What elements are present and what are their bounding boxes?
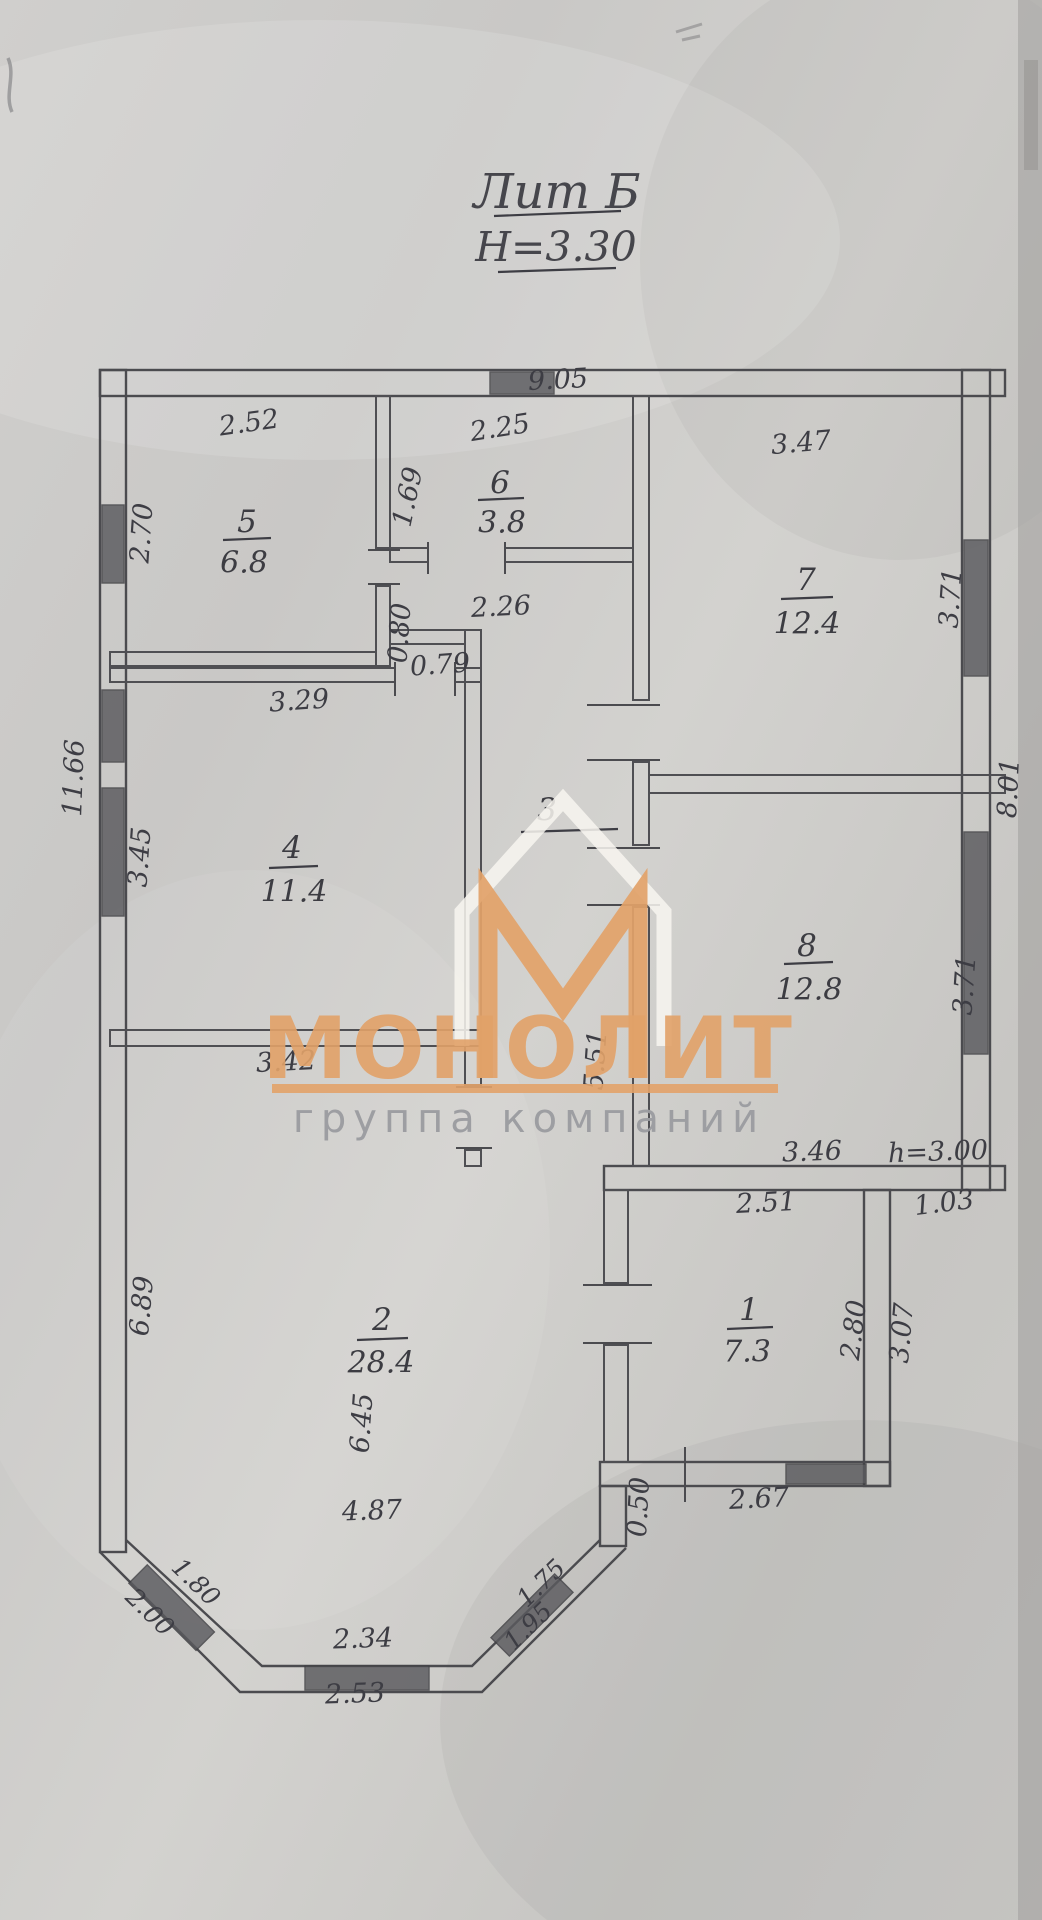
- dim-room1-height: 2.80: [835, 1298, 873, 1362]
- dim-room8-height: 3.71: [947, 954, 982, 1016]
- scan-artifact: [676, 24, 702, 40]
- dim-room5-width: 2.52: [216, 403, 281, 442]
- dim-room1-width: 2.51: [734, 1186, 797, 1220]
- dim-ceiling-note: h=3.00: [887, 1135, 988, 1169]
- dim-room2-bottom: 4.87: [340, 1494, 403, 1527]
- room-2-number: 2: [371, 1302, 392, 1338]
- window-room4-left-upper: [102, 690, 124, 762]
- dim-overall-left: 11.66: [57, 739, 91, 817]
- room-6-area: 3.8: [478, 506, 526, 541]
- dim-room2-left: 6.89: [124, 1275, 160, 1338]
- plan-height-label: H=3.30: [474, 223, 636, 271]
- room-5-area: 6.8: [220, 546, 268, 581]
- dim-vestibule-width: 2.26: [469, 590, 532, 624]
- window-room7-right: [964, 540, 988, 676]
- room-7-area: 12.4: [774, 607, 841, 642]
- room-8-number: 8: [797, 928, 817, 964]
- dim-room4-height: 3.45: [122, 826, 157, 888]
- dim-room6-width: 2.25: [467, 408, 532, 448]
- dim-room7-height: 3.71: [933, 567, 968, 629]
- room-5-number: 5: [237, 504, 257, 540]
- room-label-5: 5 6.8: [220, 504, 271, 581]
- dim-bay-bottom-inner: 2.34: [331, 1622, 393, 1655]
- dim-room7-width: 3.47: [770, 425, 833, 461]
- room-label-6: 6 3.8: [478, 465, 526, 541]
- watermark: МОНОЛИТ группа компаний: [262, 800, 796, 1142]
- room-labels: 5 6.8 6 3.8 7 12.4 4 11.4 3 8 12.8: [220, 465, 842, 1381]
- dim-right-lower: 3.07: [884, 1301, 920, 1364]
- window-room1-bottom: [786, 1464, 866, 1484]
- room-label-1: 1 7.3: [723, 1292, 773, 1370]
- room-label-2: 2 28.4: [347, 1302, 415, 1381]
- room-6-number: 6: [490, 465, 510, 501]
- room-2-area: 28.4: [347, 1346, 415, 1381]
- dim-bay-bottom-outer: 2.53: [323, 1677, 385, 1710]
- dim-room8-width: 3.46: [781, 1135, 842, 1168]
- room-7-number: 7: [796, 562, 816, 598]
- dim-room2-inner: 6.45: [344, 1392, 379, 1454]
- scanned-floor-plan-document: Лит Б H=3.30: [0, 0, 1042, 1920]
- room-label-7: 7 12.4: [774, 562, 841, 642]
- dim-room1-bottom: 2.67: [727, 1482, 790, 1516]
- floor-plan-svg: Лит Б H=3.30: [0, 0, 1042, 1920]
- watermark-underline: [272, 1084, 778, 1093]
- window-room8-right: [964, 832, 988, 1054]
- room-1-number: 1: [739, 1292, 759, 1328]
- room-4-area: 11.4: [261, 875, 328, 910]
- dim-room4-width: 3.29: [268, 683, 330, 718]
- room-label-8: 8 12.8: [776, 928, 843, 1008]
- dim-room6-height: 1.69: [387, 464, 430, 529]
- room-label-4: 4 11.4: [261, 830, 328, 910]
- dim-step-width: 1.03: [912, 1184, 975, 1222]
- dim-overall-right: 8.01: [992, 757, 1026, 819]
- window-room5-left: [102, 505, 124, 583]
- dim-jog-width: 0.79: [409, 647, 471, 682]
- dim-overall-top: 9.05: [527, 363, 589, 397]
- watermark-tagline: группа компаний: [293, 1096, 765, 1142]
- dim-stub: 0.50: [622, 1476, 656, 1538]
- window-room4-left-lower: [102, 788, 124, 916]
- room-1-area: 7.3: [723, 1335, 771, 1370]
- room-4-number: 4: [281, 830, 302, 866]
- dim-room5-height: 2.70: [124, 502, 159, 565]
- scan-artifact: [8, 58, 12, 112]
